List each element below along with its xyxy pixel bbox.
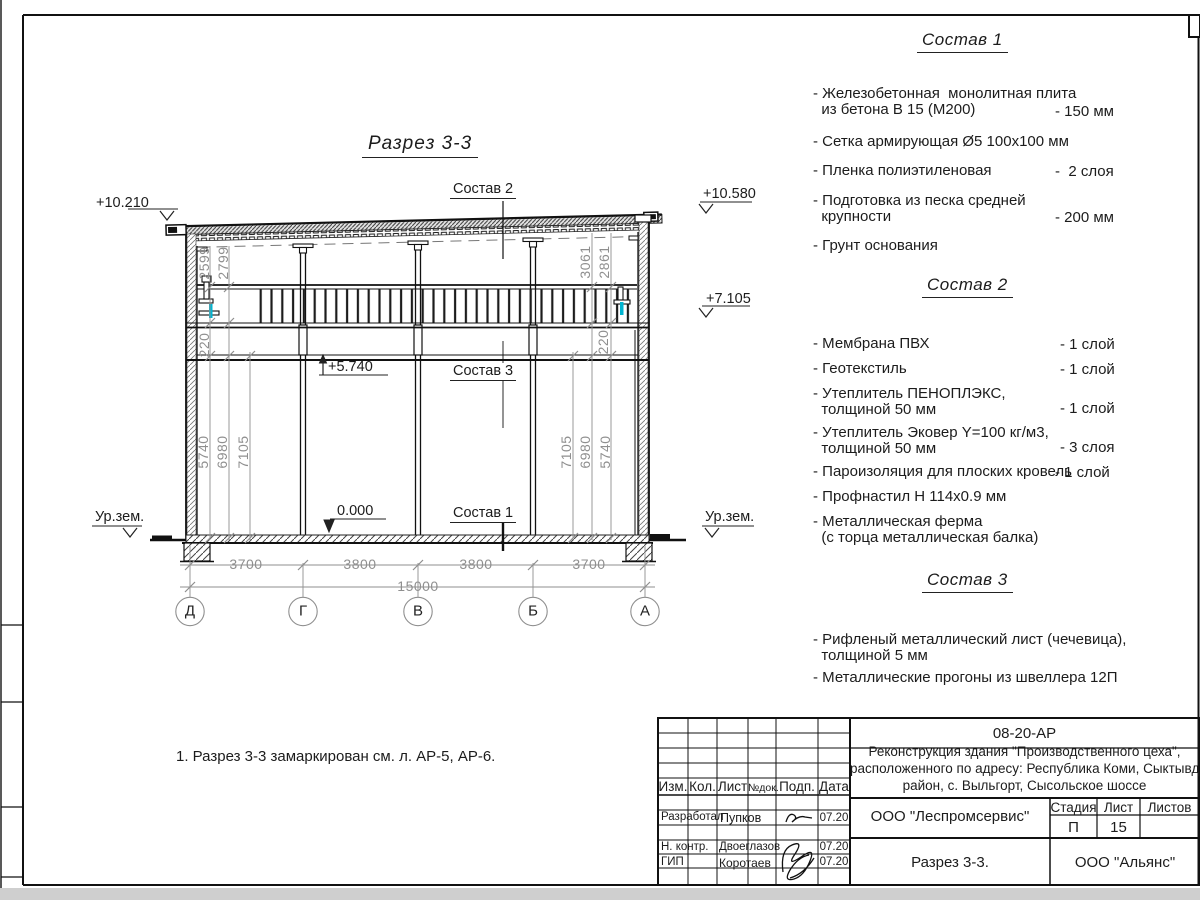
col-kol: Кол.	[688, 779, 717, 794]
role-developer: Разработал	[661, 811, 724, 823]
col-data: Дата	[818, 779, 850, 794]
name-developer: Пупков	[720, 811, 761, 825]
role-ncontr: Н. контр.	[661, 841, 708, 853]
date-ncontr: 07.20	[818, 841, 850, 853]
label-sostav-1: Состав 1	[450, 505, 516, 523]
col-izm: Изм.	[658, 779, 688, 794]
spec-value: - 2 слоя	[1055, 163, 1114, 180]
spec-item: - Профнастил Н 114х0.9 мм	[813, 489, 1006, 505]
spec-item: - Пленка полиэтиленовая	[813, 163, 992, 179]
spec-item: - Металлическая ферма (с торца металличе…	[813, 514, 1038, 545]
dim-5740-left: 5740	[195, 435, 211, 468]
sheets-label: Листов	[1140, 800, 1199, 815]
spec-value: - 1 слой	[1055, 464, 1110, 481]
dim-6980-left: 6980	[214, 435, 230, 468]
spec-heading-2: Состав 2	[922, 275, 1013, 298]
note-text: 1. Разрез 3-3 замаркирован см. л. АР-5, …	[176, 748, 495, 765]
spec-item: - Мембрана ПВХ	[813, 336, 930, 352]
spec-item: - Утеплитель Эковер Y=100 кг/м3, толщино…	[813, 425, 1049, 456]
axis-b: Б	[528, 603, 538, 620]
spec-value: - 1 слой	[1060, 361, 1115, 378]
col-list: Лист	[717, 779, 748, 794]
dim-7105-right: 7105	[558, 435, 574, 468]
elevation-right-top: +10.580	[703, 186, 756, 202]
role-gip: ГИП	[661, 856, 684, 868]
date-gip: 07.20	[818, 856, 850, 868]
footing-left	[184, 543, 210, 561]
dim-2799: 2799	[215, 246, 231, 279]
org-name: ООО "Леспромсервис"	[852, 808, 1048, 825]
ground-level-left: Ур.зем.	[95, 509, 144, 525]
spec-value: - 200 мм	[1055, 209, 1114, 226]
highlight-right	[620, 302, 624, 315]
spec-item: - Геотекстиль	[813, 361, 907, 377]
dim-2599: 2599	[196, 246, 212, 279]
spec-item: - Грунт основания	[813, 238, 938, 254]
spec-item: - Рифленый металлический лист (чечевица)…	[813, 632, 1126, 663]
dim-5740-right: 5740	[597, 435, 613, 468]
date-developer: 07.20	[818, 812, 850, 824]
elevation-right-mid: +7.105	[706, 291, 751, 307]
bearing-detail-right	[618, 287, 623, 300]
dim-220-left: 220	[196, 333, 212, 358]
spec-value: - 3 слоя	[1060, 439, 1115, 456]
col-podp: Подп.	[776, 779, 818, 794]
spec-value: - 1 слой	[1060, 336, 1115, 353]
label-sostav-2: Состав 2	[450, 181, 516, 199]
spec-item: - Металлические прогоны из швеллера 12П	[813, 670, 1118, 686]
spec-item: - Утеплитель ПЕНОПЛЭКС, толщиной 50 мм	[813, 386, 1006, 417]
dim-220-right: 220	[595, 330, 611, 355]
drawing-title: Разрез 3-3	[362, 133, 478, 158]
ground-level-right: Ур.зем.	[705, 509, 754, 525]
dim-3800-1: 3800	[343, 556, 376, 572]
spec-heading-3: Состав 3	[922, 570, 1013, 593]
drawing-name: Разрез 3-3.	[852, 854, 1048, 871]
doc-code: 08-20-АР	[852, 725, 1197, 742]
spec-item: - Сетка армирующая Ø5 100х100 мм	[813, 134, 1069, 150]
name-gip: Коротаев	[719, 856, 771, 870]
axis-a: А	[640, 603, 650, 620]
dim-7105-left: 7105	[235, 435, 251, 468]
sheet-value: 15	[1097, 819, 1140, 836]
sheet-label: Лист	[1097, 800, 1140, 815]
stage-value: П	[1050, 819, 1097, 836]
stage-label: Стадия	[1050, 800, 1097, 815]
company-name: ООО "Альянс"	[1052, 854, 1198, 871]
axis-d: Д	[185, 603, 195, 620]
dim-3800-2: 3800	[459, 556, 492, 572]
wall-right	[635, 215, 651, 540]
spec-item: - Подготовка из песка средней крупности	[813, 193, 1026, 224]
project-name: Реконструкция здания "Производственного …	[850, 743, 1199, 794]
elevation-zero: 0.000	[337, 503, 373, 519]
highlight-left	[209, 304, 213, 318]
col-ndok: №док.	[748, 782, 776, 794]
dim-15000: 15000	[397, 578, 438, 594]
drawing-sheet: Разрез 3-3 +10.210 +10.580 +7.105 +5.740…	[0, 0, 1200, 900]
wall-left	[186, 234, 197, 540]
dim-3700-2: 3700	[572, 556, 605, 572]
spec-heading-1: Состав 1	[917, 30, 1008, 53]
dim-3700-1: 3700	[229, 556, 262, 572]
elevation-mid: +5.740	[328, 359, 373, 375]
axis-v: В	[413, 603, 423, 620]
spec-value: - 150 мм	[1055, 103, 1114, 120]
name-ncontr: Двоеглазов	[719, 841, 780, 853]
axis-g: Г	[299, 603, 307, 620]
bearing-detail-left	[199, 299, 213, 303]
elevation-left-top: +10.210	[96, 195, 149, 211]
corner-format-box	[1189, 15, 1200, 37]
spec-value: - 1 слой	[1060, 400, 1115, 417]
dim-6980-right: 6980	[577, 435, 593, 468]
footing-right	[626, 543, 652, 561]
dim-3061: 3061	[577, 245, 593, 278]
label-sostav-3: Состав 3	[450, 363, 516, 381]
spec-item: - Пароизоляция для плоских кровель	[813, 464, 1072, 480]
dim-2861: 2861	[596, 245, 612, 278]
spec-item: - Железобетонная монолитная плита из бет…	[813, 86, 1076, 117]
